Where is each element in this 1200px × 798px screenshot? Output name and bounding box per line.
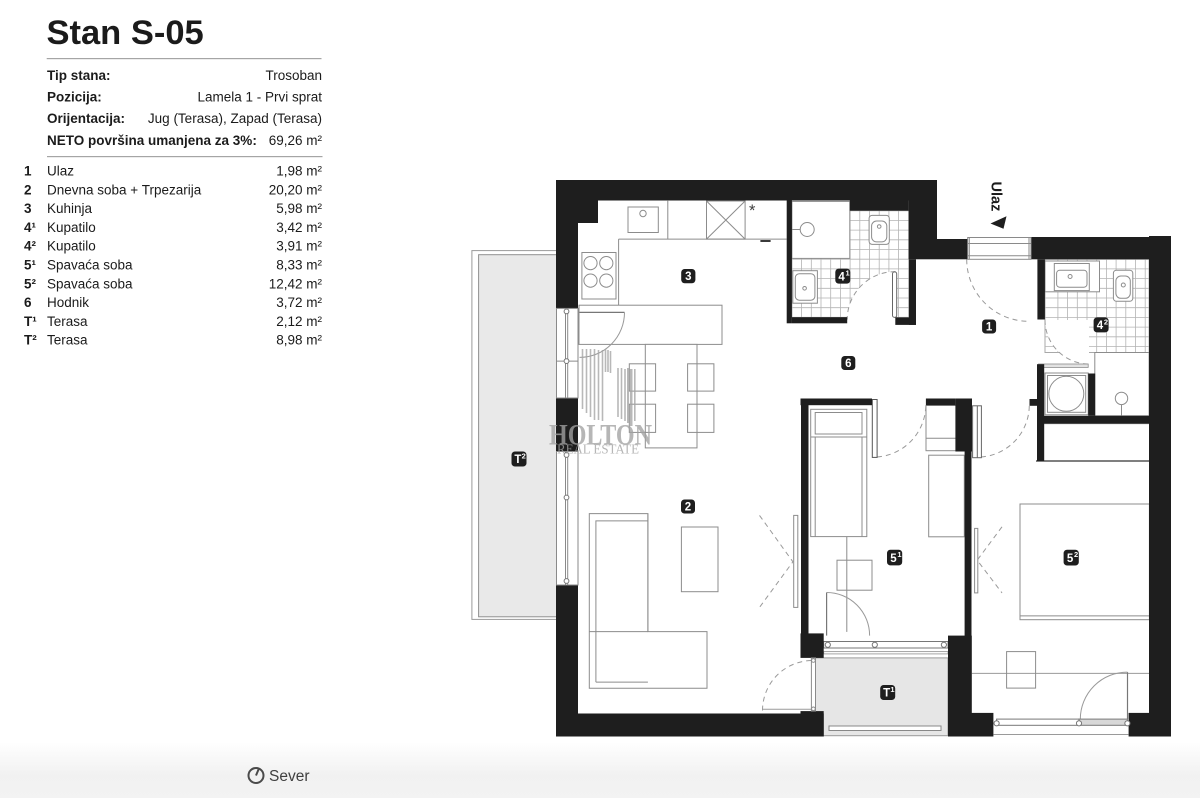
svg-text:1: 1 — [890, 685, 894, 694]
svg-text:Tip stana:: Tip stana: — [47, 68, 111, 83]
svg-text:3: 3 — [685, 271, 691, 283]
svg-text:1: 1 — [986, 321, 993, 333]
svg-text:Ulaz: Ulaz — [47, 164, 74, 179]
svg-text:T: T — [514, 454, 521, 466]
svg-text:6: 6 — [845, 358, 851, 370]
svg-text:1: 1 — [846, 269, 850, 278]
svg-text:Stan S-05: Stan S-05 — [47, 14, 204, 52]
svg-text:Spavaća soba: Spavaća soba — [47, 276, 133, 291]
svg-text:3,72 m²: 3,72 m² — [276, 295, 322, 310]
svg-text:Kuhinja: Kuhinja — [47, 201, 93, 216]
svg-text:5: 5 — [1067, 553, 1074, 565]
svg-text:5: 5 — [890, 553, 897, 565]
svg-text:8,33 m²: 8,33 m² — [276, 258, 322, 273]
svg-text:Terasa: Terasa — [47, 314, 88, 329]
svg-text:2,12 m²: 2,12 m² — [276, 314, 322, 329]
svg-text:4¹: 4¹ — [24, 220, 37, 235]
svg-text:Kupatilo: Kupatilo — [47, 220, 96, 235]
svg-text:3,91 m²: 3,91 m² — [276, 239, 322, 254]
svg-text:Ulaz: Ulaz — [988, 182, 1004, 212]
svg-text:Orijentacija:: Orijentacija: — [47, 111, 125, 126]
svg-text:2: 2 — [24, 182, 32, 197]
svg-text:2: 2 — [1074, 550, 1078, 559]
svg-text:T¹: T¹ — [24, 314, 37, 329]
svg-text:Pozicija:: Pozicija: — [47, 90, 102, 105]
svg-text:12,42 m²: 12,42 m² — [269, 276, 323, 291]
svg-text:*: * — [749, 202, 756, 220]
svg-text:Dnevna soba + Trpezarija: Dnevna soba + Trpezarija — [47, 182, 202, 197]
svg-text:2: 2 — [685, 501, 691, 513]
svg-text:6: 6 — [24, 295, 32, 310]
svg-text:Trosoban: Trosoban — [265, 68, 322, 83]
svg-text:8,98 m²: 8,98 m² — [276, 333, 322, 348]
svg-text:T²: T² — [24, 333, 37, 348]
svg-text:4: 4 — [1097, 320, 1104, 332]
svg-text:Jug (Terasa), Zapad (Terasa): Jug (Terasa), Zapad (Terasa) — [148, 111, 322, 126]
svg-text:Sever: Sever — [269, 768, 310, 785]
svg-text:T: T — [883, 688, 890, 700]
svg-text:3: 3 — [24, 201, 32, 216]
svg-text:1: 1 — [24, 164, 32, 179]
svg-text:REAL ESTATE: REAL ESTATE — [557, 443, 639, 458]
svg-text:5,98 m²: 5,98 m² — [276, 201, 322, 216]
svg-text:Terasa: Terasa — [47, 333, 88, 348]
svg-text:1,98 m²: 1,98 m² — [276, 164, 322, 179]
svg-text:2: 2 — [522, 451, 526, 460]
svg-text:Spavaća soba: Spavaća soba — [47, 258, 133, 273]
svg-text:4: 4 — [838, 271, 845, 283]
svg-text:5²: 5² — [24, 276, 37, 291]
svg-text:3,42 m²: 3,42 m² — [276, 220, 322, 235]
svg-text:20,20 m²: 20,20 m² — [269, 182, 323, 197]
svg-text:2: 2 — [1104, 317, 1108, 326]
svg-text:Kupatilo: Kupatilo — [47, 239, 96, 254]
svg-text:1: 1 — [897, 550, 901, 559]
svg-text:5¹: 5¹ — [24, 258, 37, 273]
svg-text:4²: 4² — [24, 239, 37, 254]
svg-text:Hodnik: Hodnik — [47, 295, 89, 310]
svg-text:Lamela 1 - Prvi sprat: Lamela 1 - Prvi sprat — [197, 90, 322, 105]
svg-text:NETO površina umanjena za 3%:: NETO površina umanjena za 3%: — [47, 133, 257, 148]
svg-text:69,26 m²: 69,26 m² — [269, 133, 323, 148]
